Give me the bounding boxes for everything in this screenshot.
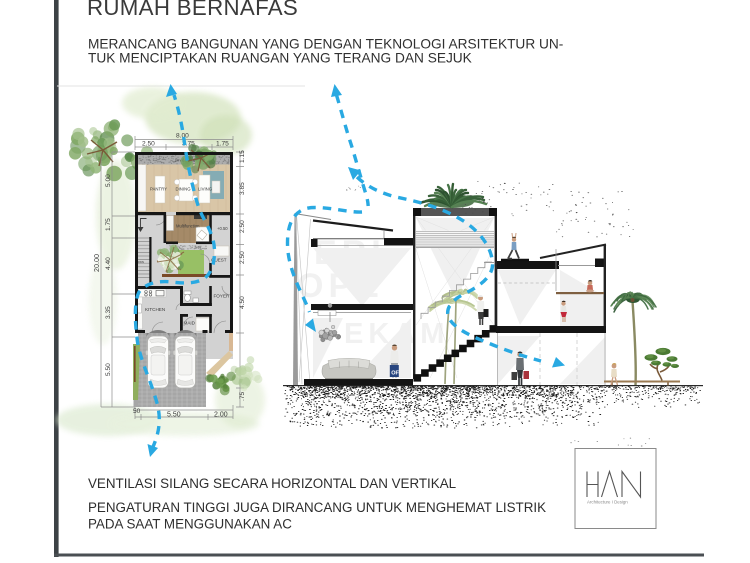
svg-text:2.00: 2.00	[214, 412, 228, 419]
svg-text:PADA SAAT MENGGUNAKAN AC: PADA SAAT MENGGUNAKAN AC	[88, 517, 292, 532]
svg-text:DINING: DINING	[176, 187, 192, 192]
svg-text:2.50: 2.50	[239, 220, 246, 233]
svg-text:PANTRY: PANTRY	[150, 187, 167, 192]
svg-text:4.50: 4.50	[239, 296, 246, 309]
svg-text:5.50: 5.50	[167, 412, 181, 419]
svg-text:PENGATURAN TINGGI JUGA DIRANCA: PENGATURAN TINGGI JUGA DIRANCANG UNTUK M…	[88, 500, 546, 515]
svg-text:20.00: 20.00	[92, 254, 101, 272]
svg-text:3.35: 3.35	[105, 306, 112, 319]
svg-text:1.75: 1.75	[105, 218, 112, 231]
svg-text:5.50: 5.50	[105, 363, 112, 376]
svg-text:OF: OF	[391, 371, 399, 377]
svg-text:+0.50: +0.50	[217, 226, 228, 231]
svg-text:VENTILASI SILANG SECARA HORIZO: VENTILASI SILANG SECARA HORIZONTAL DAN V…	[88, 476, 456, 491]
svg-text:5.00: 5.00	[105, 174, 112, 187]
svg-text:2.50: 2.50	[142, 141, 155, 148]
svg-text:Multifunction: Multifunction	[176, 224, 200, 229]
svg-text:3.85: 3.85	[239, 182, 246, 195]
svg-text:2.50: 2.50	[239, 251, 246, 264]
svg-text:LIVING: LIVING	[198, 187, 213, 192]
svg-text:4.40: 4.40	[105, 257, 112, 270]
svg-text:50: 50	[133, 408, 141, 415]
svg-text:RUMAH BERNAFAS: RUMAH BERNAFAS	[87, 0, 298, 20]
svg-text:MERANCANG BANGUNAN YANG DENGAN: MERANCANG BANGUNAN YANG DENGAN TEKNOLOGI…	[88, 37, 563, 52]
svg-text:1.15: 1.15	[239, 150, 246, 163]
svg-text:Architecture I Design: Architecture I Design	[587, 500, 628, 505]
svg-text:.75: .75	[239, 392, 246, 401]
svg-text:KITCHEN: KITCHEN	[145, 307, 165, 312]
svg-text:1.75: 1.75	[216, 141, 229, 148]
svg-text:TUK MENCIPTAKAN RUANGAN YANG T: TUK MENCIPTAKAN RUANGAN YANG TERANG DAN …	[88, 51, 472, 66]
